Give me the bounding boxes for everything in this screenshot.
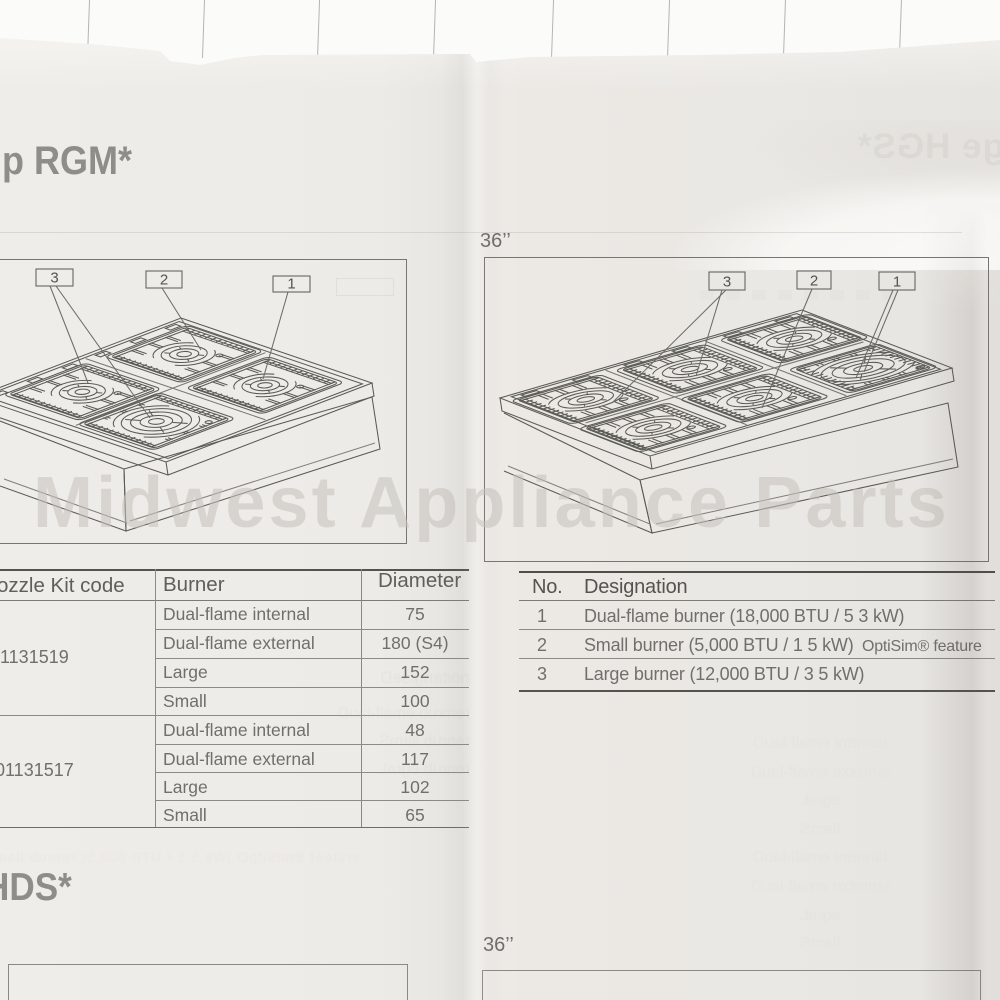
svg-text:2: 2 (160, 272, 168, 289)
svg-text:1: 1 (287, 276, 295, 293)
svg-text:3: 3 (50, 270, 58, 287)
svg-text:2: 2 (810, 273, 818, 290)
svg-text:1: 1 (893, 274, 901, 291)
svg-text:3: 3 (723, 274, 731, 291)
